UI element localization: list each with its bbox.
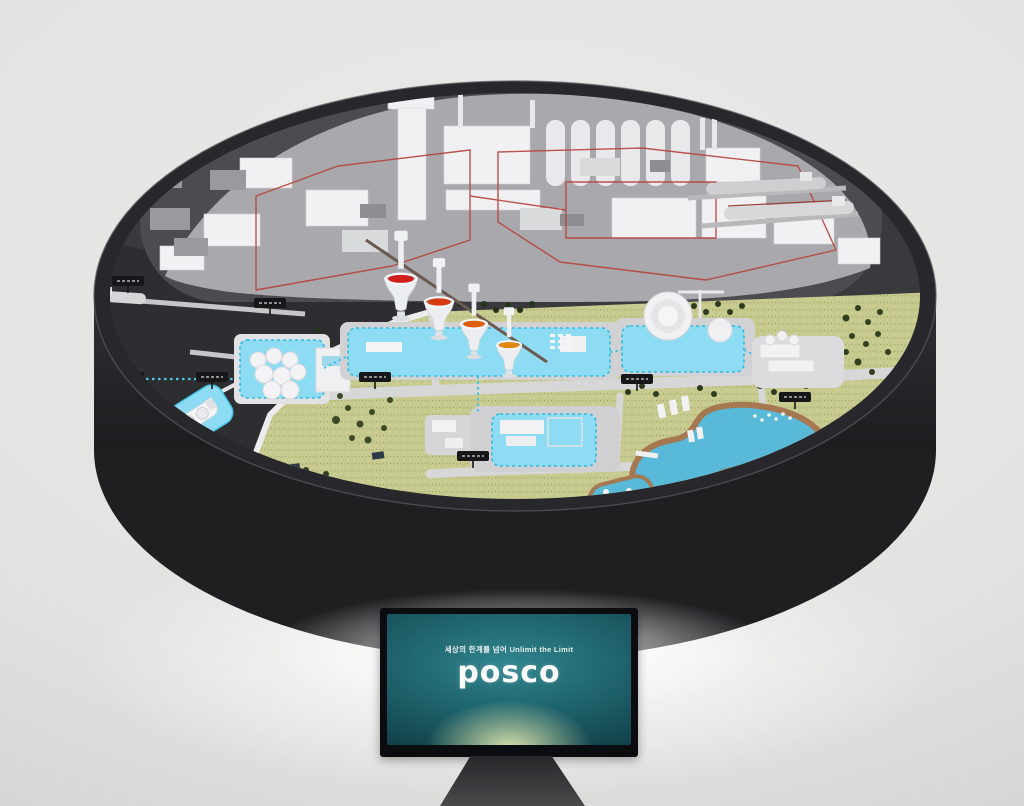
truck-yard — [550, 334, 571, 349]
small-buildings — [425, 415, 475, 455]
posco-logo: posco — [387, 658, 631, 688]
industrial-district — [140, 72, 882, 302]
brand-tagline: 세상의 한계를 넘어 Unlimit the Limit — [387, 644, 631, 655]
monitor-screen: 세상의 한계를 넘어 Unlimit the Limit posco — [387, 614, 631, 745]
display-monitor: 세상의 한계를 넘어 Unlimit the Limit posco — [380, 608, 638, 757]
exhibition-photo: 세상의 한계를 넘어 Unlimit the Limit posco — [0, 0, 1024, 806]
